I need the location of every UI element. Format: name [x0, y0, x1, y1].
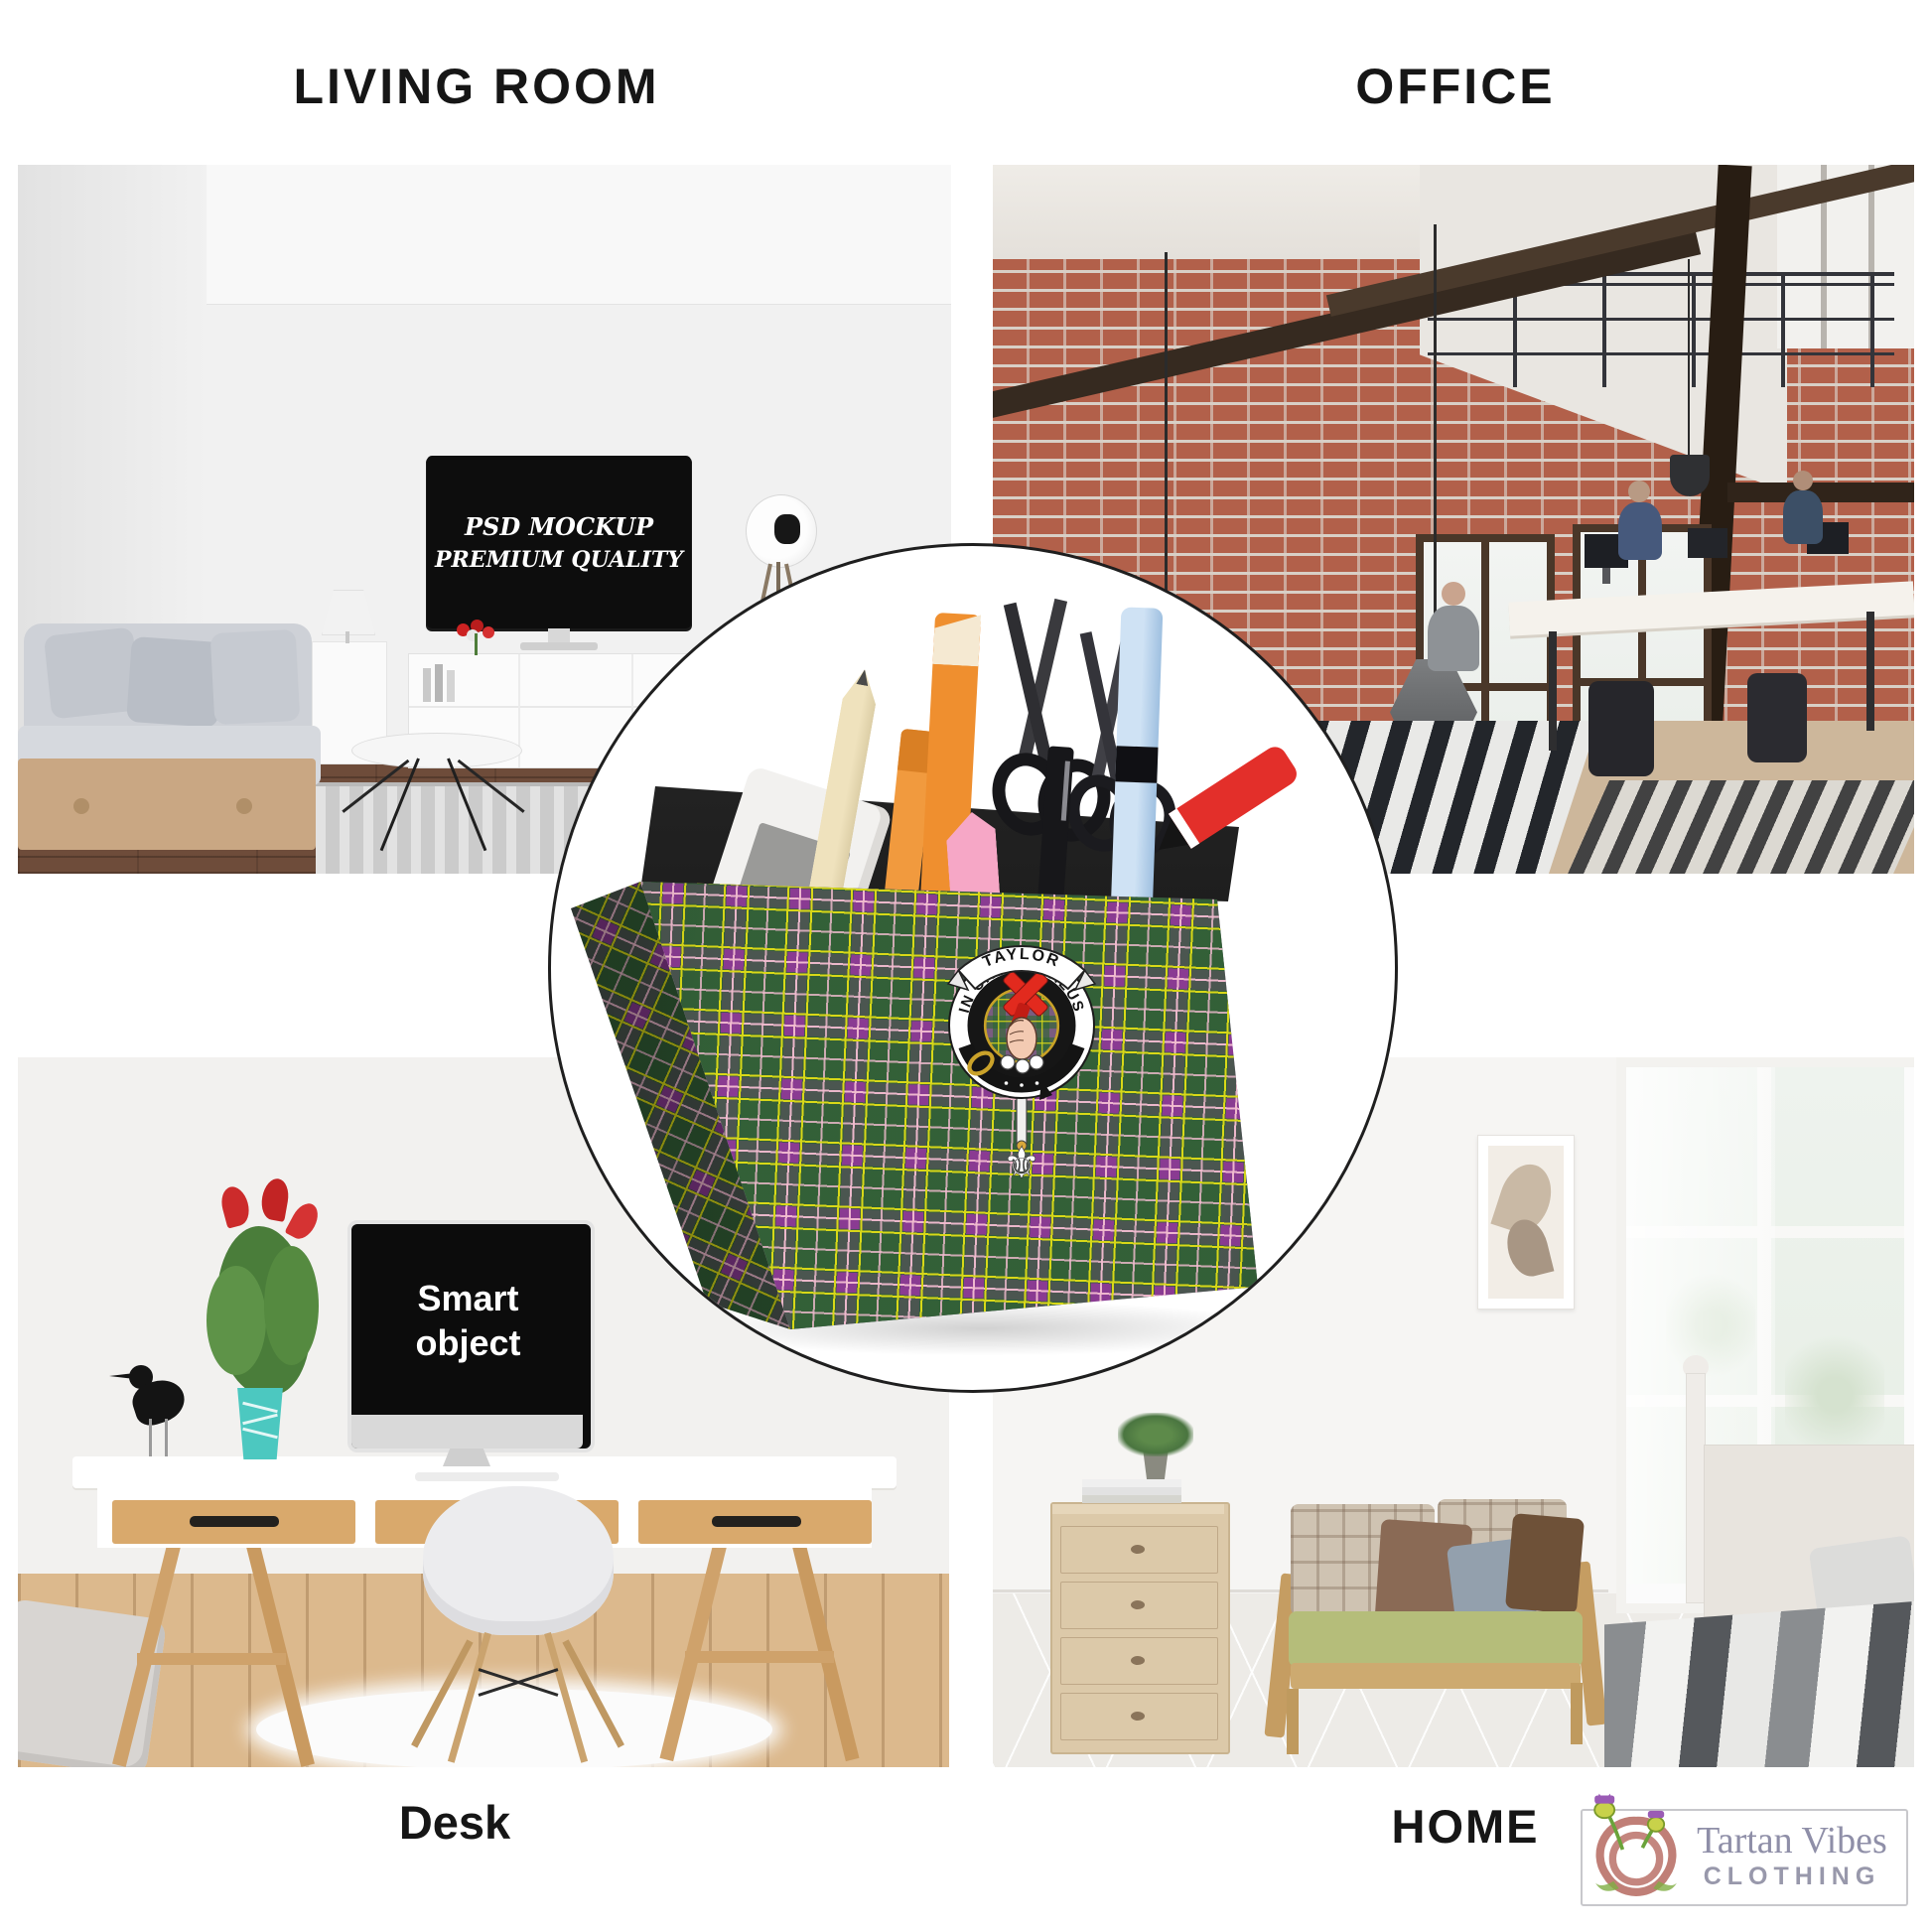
- sofa-pillow: [210, 629, 301, 725]
- person-body: [1783, 490, 1823, 544]
- plant-sprigs: [1118, 1413, 1193, 1456]
- red-flower: [284, 1199, 323, 1244]
- thistle-celtic-knot-icon: [1587, 1795, 1686, 1904]
- desk-label: Desk: [256, 1795, 653, 1850]
- brand-logo: Tartan Vibes CLOTHING: [1581, 1809, 1908, 1906]
- drawer-chest: [1050, 1502, 1230, 1754]
- person-body: [1618, 502, 1662, 560]
- plant-pot: [234, 1388, 286, 1459]
- bird-figurine-beak: [109, 1373, 135, 1379]
- pendant-lamp-icon: [1670, 455, 1710, 496]
- wood-beam-horizontal: [1727, 483, 1914, 502]
- tv-text-line1: PSD MOCKUP: [435, 512, 683, 541]
- pendant-cord: [1434, 224, 1437, 661]
- pendant-cord: [1688, 259, 1690, 458]
- tv-base: [520, 642, 598, 650]
- desk-leg: [1549, 631, 1557, 751]
- flower-bouquet: [453, 620, 500, 655]
- brand-name: Tartan Vibes: [1682, 1819, 1902, 1863]
- product-mockup-collage: LIVING ROOM OFFICE Desk HOME PSD MOCKUP …: [0, 0, 1932, 1932]
- drawer: [112, 1500, 355, 1544]
- desk-leg: [1866, 612, 1874, 731]
- book: [435, 664, 443, 702]
- drawer: [638, 1500, 872, 1544]
- stacked-books: [1082, 1479, 1181, 1487]
- striped-rug: [1568, 780, 1914, 874]
- dark-pillow: [1505, 1513, 1585, 1614]
- coffee-table-top: [351, 733, 522, 768]
- clan-crest-badge: ⚜ IN CRUCE SALUS: [922, 923, 1121, 1181]
- office-title: OFFICE: [1108, 58, 1803, 115]
- office-chair: [1588, 681, 1654, 776]
- trestle-crossbar: [685, 1651, 834, 1663]
- product-spotlight-circle: ⚜ IN CRUCE SALUS: [548, 543, 1398, 1393]
- brand-subtitle: CLOTHING: [1682, 1863, 1902, 1891]
- loveseat-leg: [1287, 1689, 1299, 1754]
- person-head: [1793, 471, 1813, 490]
- trestle-crossbar: [137, 1653, 286, 1665]
- table-lamp-shade: [322, 590, 375, 635]
- red-flower: [217, 1183, 252, 1228]
- imac-chin: [351, 1415, 583, 1449]
- person-head: [1628, 481, 1650, 502]
- loveseat-rail: [1291, 1663, 1581, 1689]
- monitor-text: Smart object: [391, 1276, 545, 1365]
- plant-foliage: [207, 1186, 321, 1400]
- fur-rug: [256, 1689, 772, 1767]
- person-head: [1442, 582, 1465, 606]
- floor-lamp-head: [774, 514, 800, 544]
- monitor: [1688, 528, 1727, 558]
- imac-stand: [443, 1449, 490, 1466]
- chair-shell: [423, 1486, 614, 1635]
- wall-art-frame: [1477, 1135, 1575, 1310]
- tv-text-line2: PREMIUM QUALITY: [435, 547, 683, 573]
- imac-monitor: Smart object: [347, 1220, 595, 1452]
- striped-duvet: [1604, 1601, 1914, 1767]
- sofa-front-panel: [18, 759, 316, 850]
- fleur-de-lis-icon: ⚜: [1003, 1140, 1040, 1186]
- loveseat-leg: [1571, 1683, 1583, 1744]
- seat-cushion: [1289, 1611, 1583, 1667]
- red-flower: [259, 1176, 292, 1222]
- living-room-title: LIVING ROOM: [129, 58, 824, 115]
- office-chair: [1747, 673, 1807, 762]
- bed-post: [1686, 1373, 1706, 1603]
- foliage-outside: [1785, 1325, 1884, 1464]
- table-lamp-stem: [345, 631, 349, 643]
- book: [447, 670, 455, 702]
- sofa-pillow: [126, 636, 223, 728]
- book: [423, 668, 431, 702]
- person-body: [1428, 606, 1479, 671]
- tv-screen: PSD MOCKUP PREMIUM QUALITY: [427, 456, 691, 628]
- keyboard: [415, 1472, 559, 1481]
